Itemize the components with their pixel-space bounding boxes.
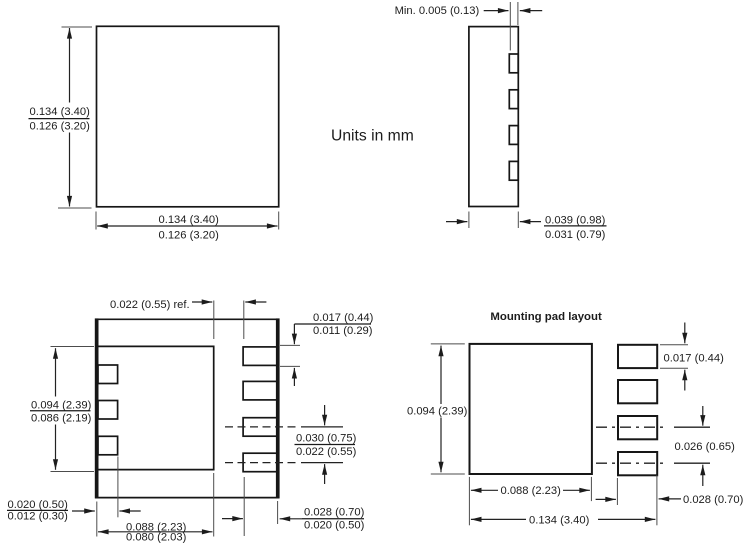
svg-text:0.030 (0.75): 0.030 (0.75) bbox=[296, 433, 357, 445]
svg-text:Mounting pad layout: Mounting pad layout bbox=[490, 311, 602, 323]
svg-text:0.022 (0.55): 0.022 (0.55) bbox=[296, 446, 357, 458]
svg-text:0.012 (0.30): 0.012 (0.30) bbox=[8, 510, 69, 522]
svg-text:0.028 (0.70): 0.028 (0.70) bbox=[683, 494, 744, 506]
svg-text:0.039 (0.98): 0.039 (0.98) bbox=[545, 215, 606, 227]
svg-text:0.094 (2.39): 0.094 (2.39) bbox=[31, 400, 92, 412]
svg-text:0.134 (3.40): 0.134 (3.40) bbox=[529, 515, 590, 527]
svg-text:0.126 (3.20): 0.126 (3.20) bbox=[30, 121, 91, 133]
svg-text:0.031 (0.79): 0.031 (0.79) bbox=[545, 229, 606, 241]
svg-text:0.017 (0.44): 0.017 (0.44) bbox=[664, 353, 725, 365]
svg-text:0.028 (0.70): 0.028 (0.70) bbox=[304, 507, 365, 519]
svg-text:0.134 (3.40): 0.134 (3.40) bbox=[30, 106, 91, 118]
svg-text:0.126 (3.20): 0.126 (3.20) bbox=[159, 230, 220, 242]
svg-text:Min. 0.005 (0.13): Min. 0.005 (0.13) bbox=[395, 5, 480, 17]
svg-text:0.134 (3.40): 0.134 (3.40) bbox=[159, 214, 220, 226]
svg-text:0.011 (0.29): 0.011 (0.29) bbox=[313, 325, 373, 337]
svg-text:0.022 (0.55) ref.: 0.022 (0.55) ref. bbox=[110, 299, 190, 311]
svg-text:0.017 (0.44): 0.017 (0.44) bbox=[313, 312, 374, 324]
svg-text:Units in mm: Units in mm bbox=[331, 128, 414, 145]
svg-text:0.026 (0.65): 0.026 (0.65) bbox=[675, 441, 736, 453]
svg-text:0.088 (2.23): 0.088 (2.23) bbox=[501, 485, 562, 497]
svg-text:0.086 (2.19): 0.086 (2.19) bbox=[31, 413, 92, 425]
svg-text:0.094 (2.39): 0.094 (2.39) bbox=[407, 406, 468, 418]
svg-text:0.020 (0.50): 0.020 (0.50) bbox=[304, 520, 365, 532]
svg-text:0.020 (0.50): 0.020 (0.50) bbox=[8, 499, 69, 511]
svg-text:0.080 (2.03): 0.080 (2.03) bbox=[126, 532, 187, 544]
